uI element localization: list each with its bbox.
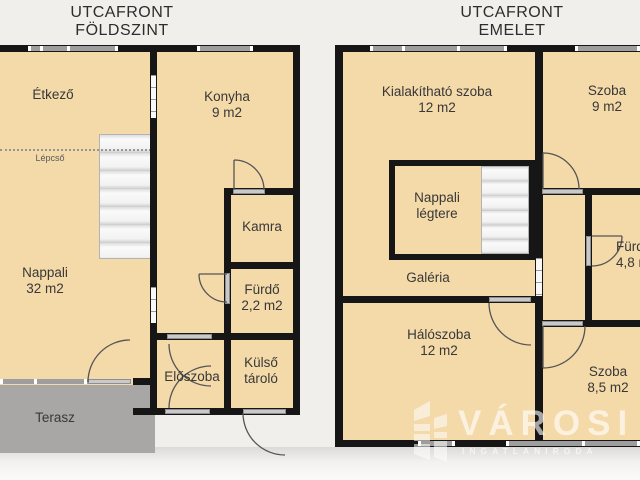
room-name: Galéria (393, 270, 463, 286)
room-label-terasz: Terasz (20, 410, 90, 426)
plan-title-upper: UTCAFRONT EMELET (412, 4, 612, 40)
door-arc (88, 340, 130, 382)
room-area: 9 m2 (572, 99, 640, 115)
room-name: Előszoba (154, 369, 230, 385)
room-area: 12 m2 (399, 343, 479, 359)
room-name: Lépcső (30, 153, 70, 163)
door-arc (199, 274, 227, 302)
room-name: Nappali (10, 265, 80, 281)
room-label-szoba-85: Szoba 8,5 m2 (573, 364, 640, 396)
door-arc (234, 160, 264, 190)
room-label-furdo-upper: Fürdő 4,8 m2 (616, 239, 640, 271)
plan-title-line: UTCAFRONT (22, 4, 222, 22)
room-label-nappali: Nappali 32 m2 (10, 265, 80, 297)
plan-title-line: EMELET (412, 22, 612, 40)
room-label-szoba-9: Szoba 9 m2 (572, 83, 640, 115)
door-arc (543, 153, 579, 189)
room-area: 2,2 m2 (227, 298, 297, 314)
room-name: Fürdő (227, 282, 297, 298)
room-label-konyha: Konyha 9 m2 (187, 89, 267, 121)
room-name: Fürdő (616, 239, 640, 255)
building-icon (400, 394, 460, 466)
door-arc (243, 413, 285, 455)
room-name: Kamra (227, 219, 297, 235)
room-label-nappali-legtere: Nappali légtere (397, 190, 477, 222)
room-name: Szoba (573, 364, 640, 380)
room-label-furdo-ground: Fürdő 2,2 m2 (227, 282, 297, 314)
room-area: 12 m2 (352, 100, 522, 116)
room-label-kialakithato-szoba: Kialakítható szoba 12 m2 (352, 84, 522, 116)
room-label-kulso-tarolo: Külső tároló (228, 355, 294, 387)
room-area: 9 m2 (187, 105, 267, 121)
room-name: Konyha (187, 89, 267, 105)
door-arc (489, 303, 531, 345)
room-label-haloszoba: Hálószoba 12 m2 (399, 327, 479, 359)
room-label-kamra: Kamra (227, 219, 297, 235)
floorplan-canvas: UTCAFRONT FÖLDSZINT UTCAFRONT EMELET (0, 0, 640, 480)
plan-title-line: FÖLDSZINT (22, 22, 222, 40)
room-name: Szoba (572, 83, 640, 99)
room-area: 4,8 m2 (616, 255, 640, 271)
room-name: Étkező (18, 87, 88, 103)
room-label-lepcso: Lépcső (30, 153, 70, 163)
room-name: Nappali légtere (397, 190, 477, 222)
plan-title-ground: UTCAFRONT FÖLDSZINT (22, 4, 222, 40)
room-label-galeria: Galéria (393, 270, 463, 286)
plan-title-line: UTCAFRONT (412, 4, 612, 22)
room-area: 8,5 m2 (573, 380, 640, 396)
watermark-tagline: INGATLANIRODA (462, 446, 598, 456)
room-area: 32 m2 (10, 281, 80, 297)
room-label-etkezo: Étkező (18, 87, 88, 103)
watermark-brand: VÁROSI (458, 404, 634, 444)
room-name: Hálószoba (399, 327, 479, 343)
room-name: Terasz (20, 410, 90, 426)
room-label-eloszoba: Előszoba (154, 369, 230, 385)
door-arc (543, 326, 585, 368)
room-name: Külső tároló (228, 355, 294, 387)
room-name: Kialakítható szoba (352, 84, 522, 100)
